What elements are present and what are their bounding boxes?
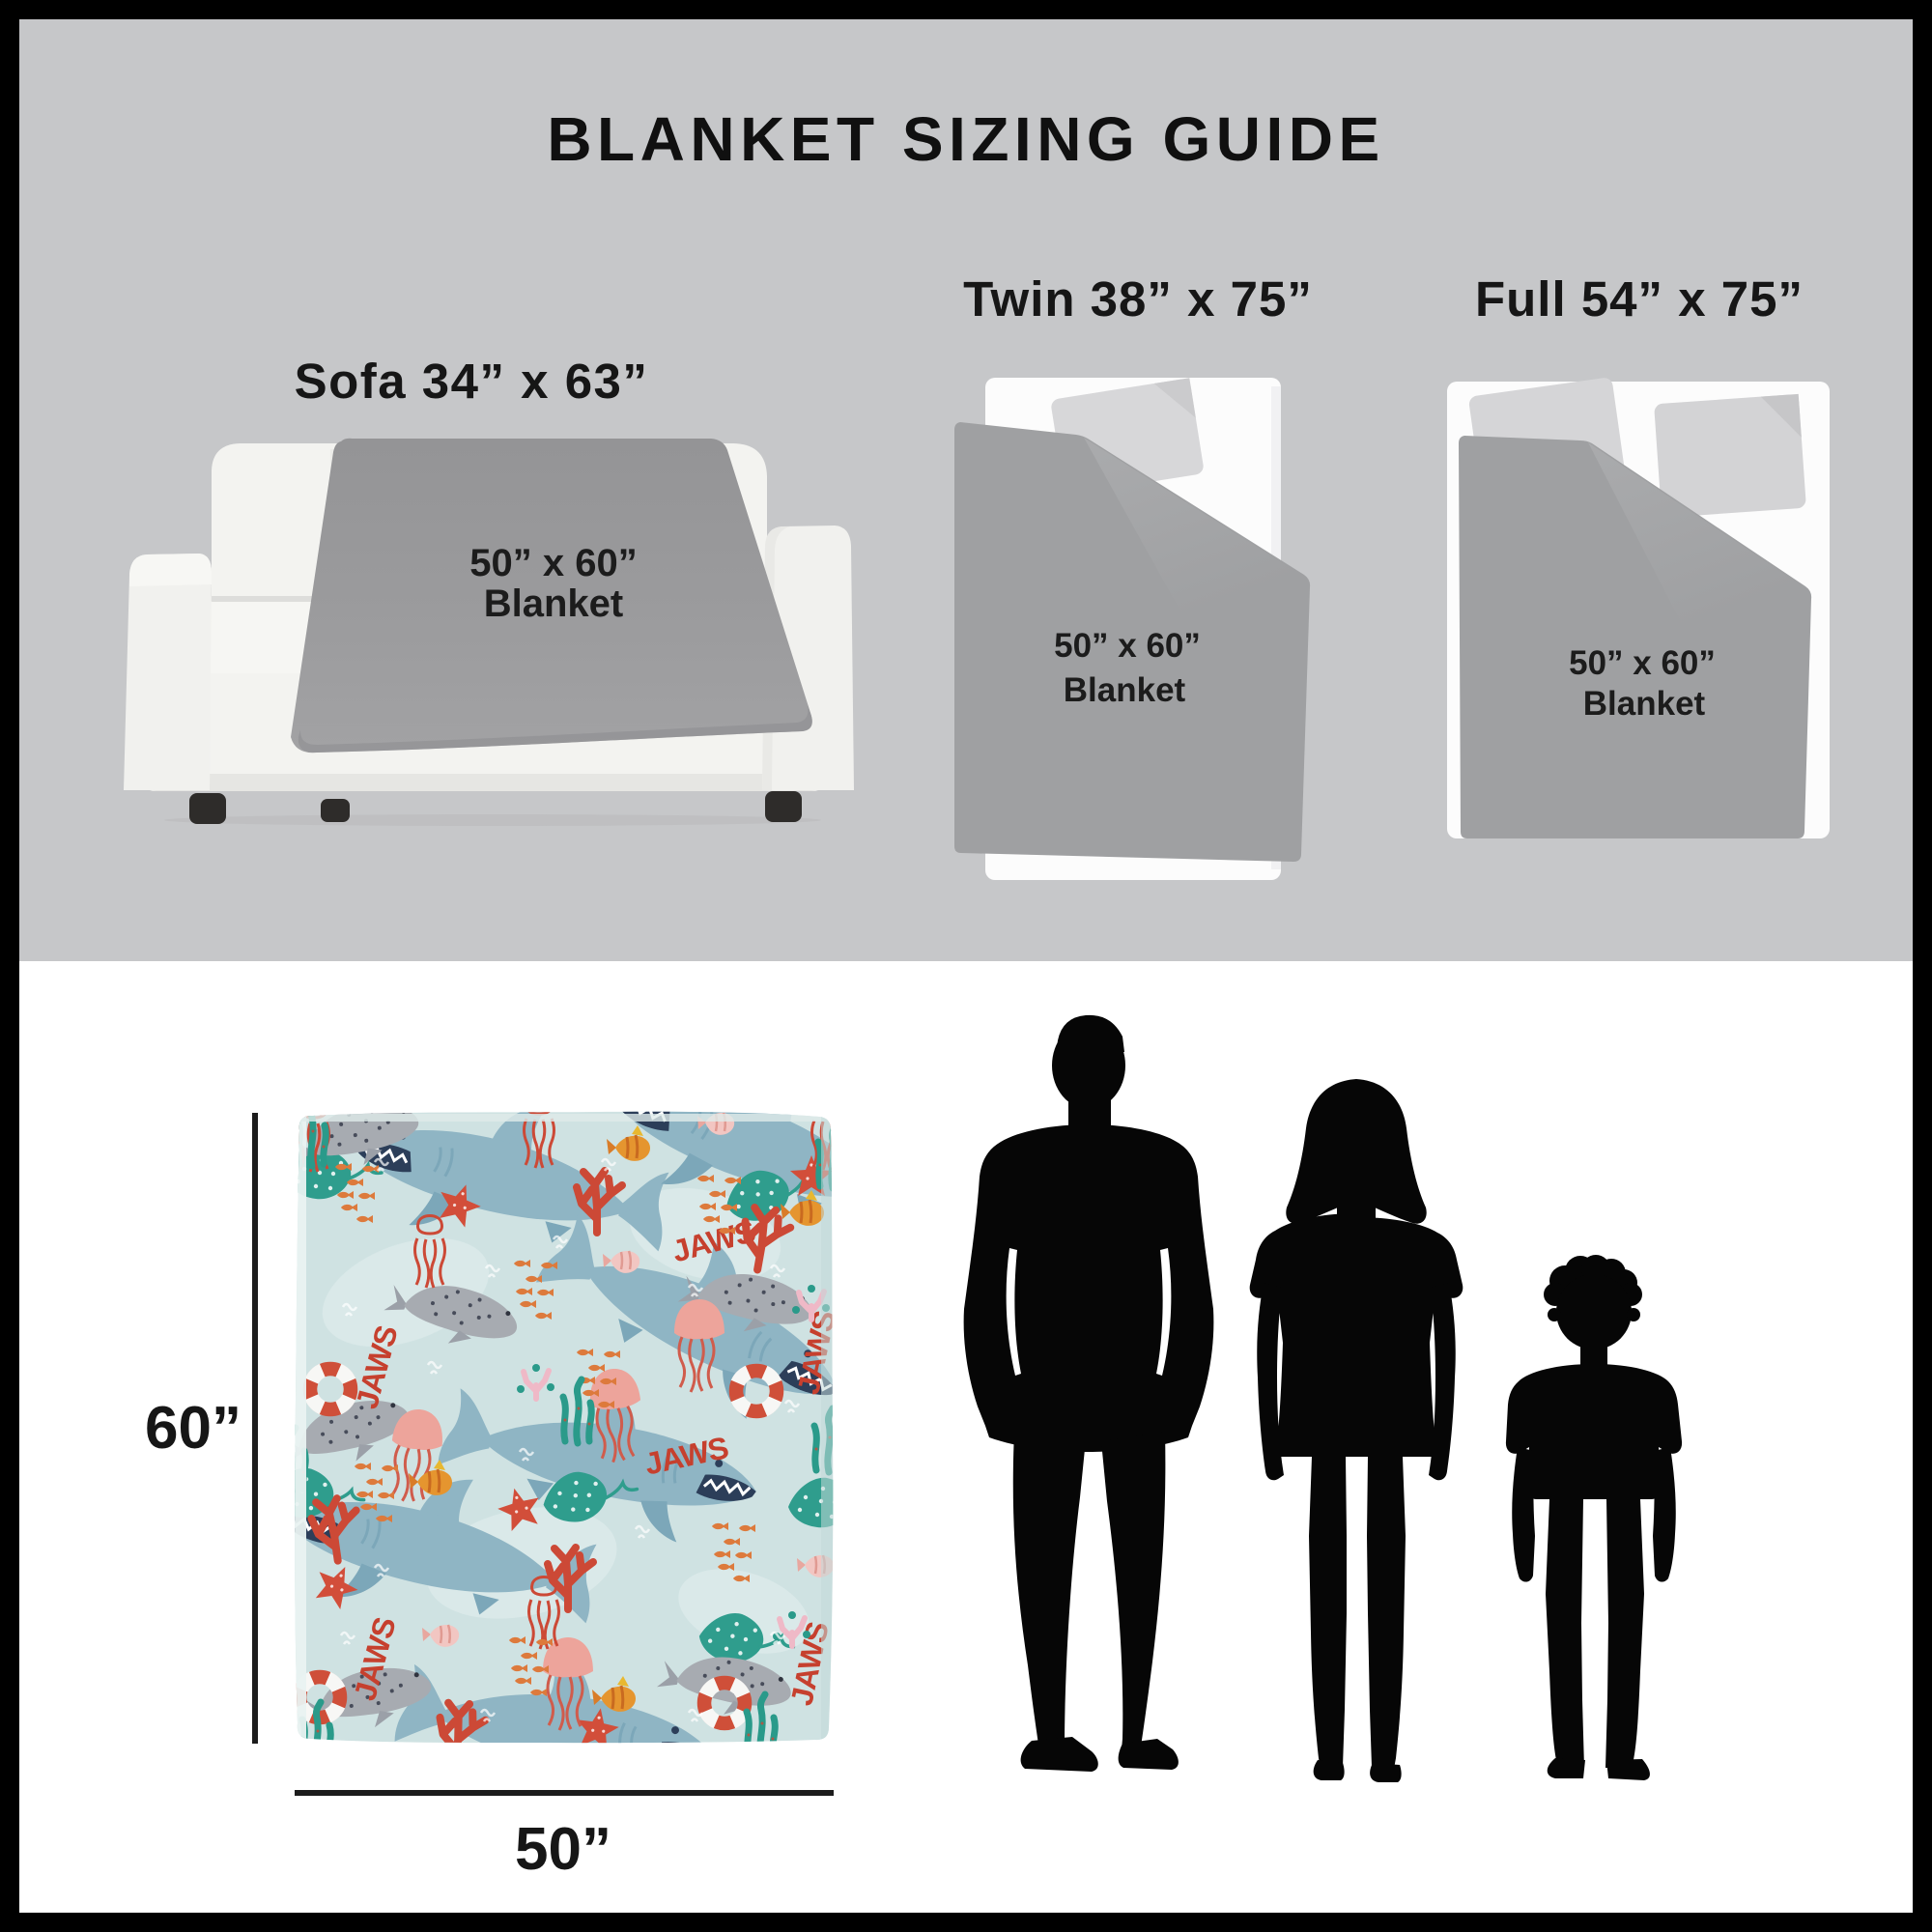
- svg-text:Blanket: Blanket: [1064, 671, 1186, 709]
- svg-text:Blanket: Blanket: [1583, 685, 1706, 723]
- svg-text:50” x 60”: 50” x 60”: [1054, 627, 1201, 665]
- svg-text:50” x 60”: 50” x 60”: [469, 542, 637, 584]
- svg-text:Blanket: Blanket: [484, 582, 624, 625]
- svg-text:50” x 60”: 50” x 60”: [1569, 644, 1716, 682]
